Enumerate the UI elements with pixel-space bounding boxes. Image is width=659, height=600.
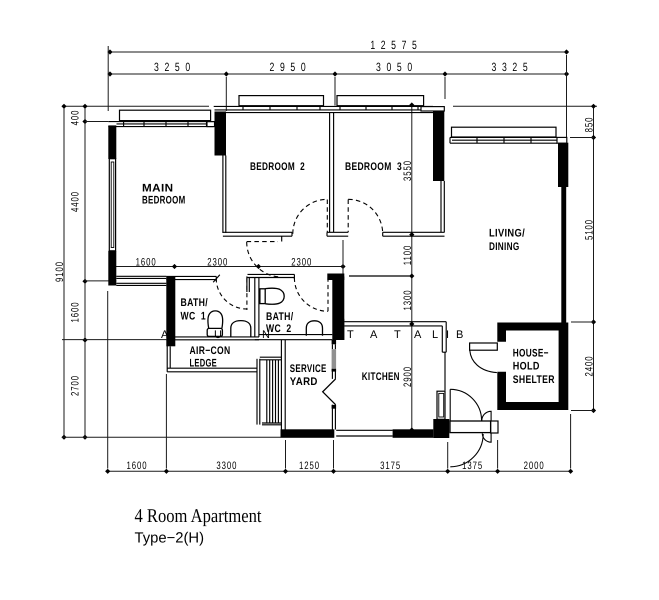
svg-text:WC 1: WC 1 — [181, 310, 207, 322]
svg-text:3175: 3175 — [380, 460, 401, 472]
svg-text:1600: 1600 — [136, 256, 157, 268]
svg-text:BATH/: BATH/ — [181, 297, 209, 309]
svg-text:T: T — [394, 329, 401, 341]
svg-text:1250: 1250 — [299, 460, 320, 472]
svg-text:N: N — [262, 329, 270, 341]
svg-text:3250: 3250 — [154, 60, 196, 74]
svg-text:2300: 2300 — [291, 256, 312, 268]
svg-text:3325: 3325 — [492, 60, 534, 74]
svg-text:400: 400 — [69, 110, 81, 126]
svg-text:A: A — [161, 329, 169, 341]
svg-text:1600: 1600 — [126, 460, 147, 472]
svg-text:I: I — [446, 329, 449, 341]
svg-text:1375: 1375 — [462, 460, 483, 472]
svg-text:A: A — [370, 329, 378, 341]
svg-text:DINING: DINING — [489, 241, 520, 253]
svg-text:LEDGE: LEDGE — [190, 358, 218, 370]
svg-text:3300: 3300 — [216, 460, 237, 472]
svg-text:KITCHEN: KITCHEN — [362, 371, 400, 383]
svg-text:HOUSE−: HOUSE− — [513, 348, 549, 360]
svg-text:2900: 2900 — [402, 366, 414, 387]
svg-text:3050: 3050 — [376, 60, 418, 74]
svg-text:2000: 2000 — [524, 460, 545, 472]
svg-text:2400: 2400 — [584, 355, 596, 376]
svg-text:4 Room Apartment: 4 Room Apartment — [135, 506, 262, 527]
svg-text:4400: 4400 — [69, 191, 81, 212]
svg-text:2300: 2300 — [207, 256, 228, 268]
svg-text:T: T — [347, 329, 354, 341]
svg-text:Type−2(H): Type−2(H) — [135, 531, 205, 547]
svg-text:BEDROOM: BEDROOM — [142, 195, 186, 207]
svg-text:1600: 1600 — [69, 301, 81, 322]
svg-text:AIR−CON: AIR−CON — [190, 345, 231, 357]
svg-text:YARD: YARD — [290, 376, 318, 388]
svg-text:BEDROOM 2: BEDROOM 2 — [250, 161, 305, 173]
svg-text:MAIN: MAIN — [142, 183, 174, 195]
svg-text:B: B — [456, 329, 463, 341]
svg-text:LIVING/: LIVING/ — [489, 228, 525, 240]
svg-text:BATH/: BATH/ — [266, 311, 294, 323]
svg-text:1100: 1100 — [402, 245, 414, 265]
svg-text:12575: 12575 — [370, 38, 422, 52]
svg-text:2700: 2700 — [69, 375, 81, 396]
svg-text:SHELTER: SHELTER — [513, 374, 555, 386]
svg-text:A: A — [414, 329, 422, 341]
svg-text:9100: 9100 — [54, 261, 66, 282]
svg-text:BEDROOM 3: BEDROOM 3 — [345, 161, 402, 173]
svg-text:L: L — [432, 329, 438, 341]
svg-text:SERVICE: SERVICE — [290, 363, 327, 375]
svg-text:3550: 3550 — [402, 160, 414, 181]
svg-text:HOLD: HOLD — [513, 361, 540, 373]
svg-text:2950: 2950 — [270, 60, 312, 74]
svg-text:850: 850 — [584, 117, 596, 133]
svg-text:1300: 1300 — [402, 289, 414, 310]
svg-text:U: U — [214, 329, 222, 341]
svg-text:5100: 5100 — [584, 219, 596, 240]
